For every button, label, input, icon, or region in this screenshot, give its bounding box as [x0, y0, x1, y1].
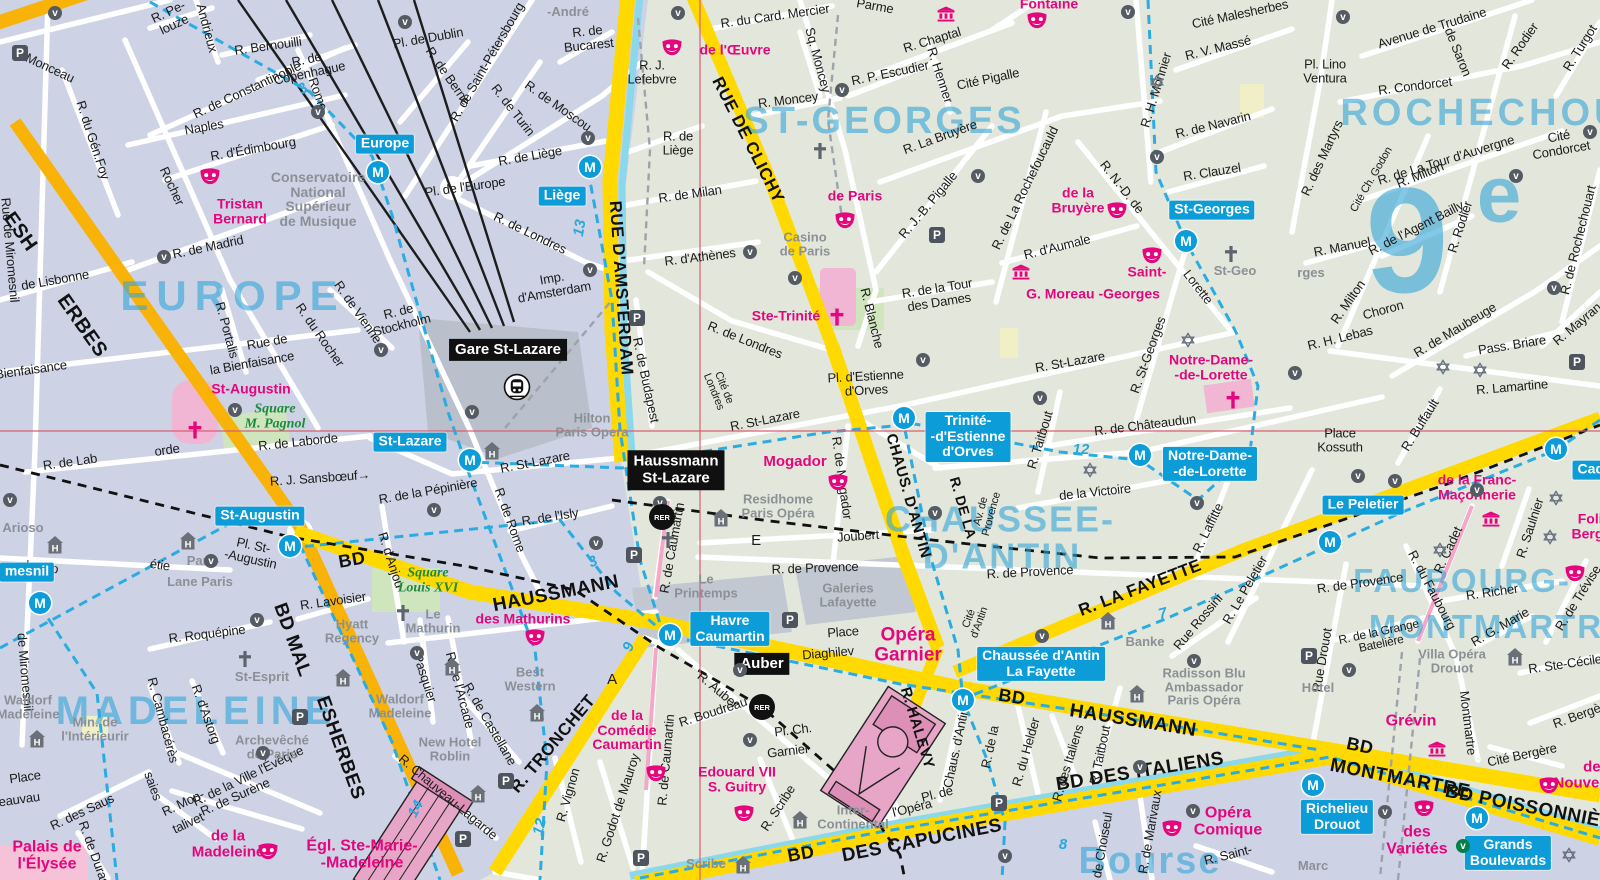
v-marker-icon[interactable]: v — [311, 105, 325, 119]
theater-icon — [662, 39, 683, 57]
v-marker-icon[interactable]: v — [398, 15, 412, 29]
v-marker-icon[interactable]: v — [1288, 366, 1302, 380]
museum-icon — [937, 7, 956, 22]
theater-icon — [1414, 800, 1435, 818]
museum-icon — [1428, 742, 1447, 757]
v-marker-icon[interactable]: v — [204, 554, 218, 568]
parking-icon[interactable]: P — [629, 310, 645, 326]
synagogue-icon — [1150, 75, 1165, 90]
metro-m-icon[interactable]: M — [459, 449, 481, 471]
svg-text:H: H — [34, 738, 41, 749]
v-marker-icon[interactable]: v — [228, 403, 242, 417]
church-cross-icon — [830, 309, 845, 326]
metro-m-icon[interactable]: M — [367, 161, 389, 183]
hotel-icon[interactable]: H — [29, 730, 46, 748]
church-cross-icon — [238, 651, 252, 667]
synagogue-icon — [1181, 333, 1196, 348]
v-marker-icon[interactable]: v — [48, 6, 62, 20]
v-marker-icon[interactable]: v — [1378, 805, 1392, 819]
parking-icon[interactable]: P — [991, 795, 1007, 811]
paris-street-map[interactable]: EUROPEMADELEINEST-GEORGESCHAUSSEE-D'ANTI… — [0, 0, 1600, 880]
synagogue-icon — [1549, 491, 1564, 506]
svg-text:H: H — [1512, 656, 1519, 667]
parking-icon[interactable]: P — [929, 227, 945, 243]
synagogue-icon — [1433, 543, 1448, 558]
v-marker-icon[interactable]: v — [256, 746, 270, 760]
train-station-icon[interactable] — [504, 374, 531, 401]
parking-icon[interactable]: P — [292, 709, 308, 725]
v-marker-icon[interactable]: v — [1033, 391, 1047, 405]
hotel-icon[interactable]: H — [1507, 648, 1524, 666]
v-marker-icon[interactable]: v — [998, 849, 1012, 863]
theater-icon — [734, 805, 755, 823]
parking-icon[interactable]: P — [626, 547, 642, 563]
metro-m-icon[interactable]: M — [279, 535, 301, 557]
svg-text:H: H — [797, 819, 804, 830]
synagogue-icon — [1543, 530, 1558, 545]
church-cross-icon — [396, 605, 410, 621]
synagogue-icon — [1436, 360, 1451, 375]
theater-icon — [258, 843, 279, 861]
theater-icon — [525, 629, 546, 647]
parking-icon[interactable]: P — [633, 850, 649, 866]
hotel-icon[interactable]: H — [47, 536, 64, 554]
hotel-icon[interactable]: H — [792, 811, 809, 829]
theater-icon — [1539, 777, 1560, 795]
metro-m-icon[interactable]: M — [1466, 807, 1488, 829]
hotel-icon[interactable]: H — [335, 669, 352, 687]
v-marker-icon[interactable]: v — [916, 353, 930, 367]
v-marker-icon[interactable]: v — [1336, 10, 1350, 24]
hotel-icon[interactable]: H — [735, 856, 752, 874]
v-marker-icon[interactable]: v — [3, 493, 17, 507]
v-marker-icon[interactable]: v — [427, 503, 441, 517]
v-marker-icon[interactable]: v — [733, 663, 747, 677]
v-marker-icon[interactable]: v — [1190, 496, 1204, 510]
v-marker-icon[interactable]: v — [743, 733, 757, 747]
v-marker-icon[interactable]: v — [743, 245, 757, 259]
hotel-icon[interactable]: H — [180, 532, 197, 550]
v-marker-icon[interactable]: v — [1547, 281, 1561, 295]
metro-m-icon[interactable]: M — [1545, 438, 1567, 460]
church-cross-icon — [813, 143, 827, 159]
v-marker-icon[interactable]: v — [1121, 5, 1135, 19]
map-icons-layer: MMMMMMMMMMMMMMvvvvvvvvvvvvvvvvvvvvvvvvvv… — [0, 0, 1600, 880]
hotel-icon[interactable]: H — [470, 785, 487, 803]
museum-icon — [1482, 512, 1501, 527]
parking-icon[interactable]: P — [455, 831, 471, 847]
parking-icon[interactable]: P — [782, 612, 798, 628]
svg-text:H: H — [740, 864, 747, 875]
theater-icon — [828, 474, 849, 492]
hotel-icon[interactable]: H — [1129, 685, 1146, 703]
v-marker-icon[interactable]: v — [589, 536, 603, 550]
metro-m-icon[interactable]: M — [659, 624, 681, 646]
synagogue-icon — [1562, 848, 1577, 863]
hotel-icon[interactable]: H — [444, 658, 461, 676]
svg-text:H: H — [475, 793, 482, 804]
rer-icon[interactable]: RER — [749, 694, 775, 720]
v-marker-icon[interactable]: v — [928, 506, 942, 520]
v-marker-icon[interactable]: v — [1150, 150, 1164, 164]
v-marker-icon[interactable]: v — [410, 646, 424, 660]
theater-icon — [1027, 12, 1048, 30]
parking-icon[interactable]: P — [1301, 648, 1317, 664]
museum-icon — [1012, 265, 1031, 280]
svg-text:H: H — [340, 677, 347, 688]
hotel-icon[interactable]: H — [713, 509, 730, 527]
v-marker-icon[interactable]: v — [1035, 629, 1049, 643]
metro-m-icon[interactable]: M — [952, 689, 974, 711]
svg-text:H: H — [718, 517, 725, 528]
v-marker-icon[interactable]: v — [157, 250, 171, 264]
v-marker-green-icon[interactable]: v — [1456, 839, 1470, 853]
church-cross-icon — [188, 422, 203, 439]
v-marker-icon[interactable]: v — [465, 405, 479, 419]
svg-text:H: H — [1105, 620, 1112, 631]
metro-m-icon[interactable]: M — [1319, 531, 1341, 553]
parking-icon[interactable]: P — [498, 773, 514, 789]
metro-m-icon[interactable]: M — [29, 592, 51, 614]
metro-m-icon[interactable]: M — [1175, 230, 1197, 252]
theater-icon — [1162, 820, 1183, 838]
v-marker-icon[interactable]: v — [788, 271, 802, 285]
v-marker-icon[interactable]: v — [250, 613, 264, 627]
church-cross-icon — [1224, 246, 1238, 262]
svg-text:H: H — [449, 666, 456, 677]
v-marker-icon[interactable]: v — [1583, 125, 1597, 139]
theater-icon — [200, 168, 221, 186]
metro-m-icon[interactable]: M — [1129, 444, 1151, 466]
metro-m-icon[interactable]: M — [893, 407, 915, 429]
v-marker-icon[interactable]: v — [1388, 474, 1402, 488]
theater-icon — [1142, 247, 1163, 265]
theater-icon — [835, 212, 856, 230]
v-marker-icon[interactable]: v — [581, 131, 595, 145]
v-marker-icon[interactable]: v — [1342, 663, 1356, 677]
theater-icon — [1107, 202, 1128, 220]
parking-icon[interactable]: P — [12, 45, 28, 61]
svg-text:H: H — [52, 544, 59, 555]
v-marker-icon[interactable]: v — [1186, 804, 1200, 818]
rer-icon[interactable]: RER — [649, 504, 675, 530]
svg-text:H: H — [534, 712, 541, 723]
v-marker-icon[interactable]: v — [1470, 483, 1484, 497]
svg-text:H: H — [185, 540, 192, 551]
metro-m-icon[interactable]: M — [1302, 774, 1324, 796]
church-cross-icon — [1226, 392, 1241, 409]
church-cross-icon — [661, 532, 675, 548]
v-marker-icon[interactable]: v — [374, 343, 388, 357]
synagogue-icon — [1473, 363, 1488, 378]
hotel-icon[interactable]: H — [1100, 612, 1117, 630]
svg-text:H: H — [489, 450, 496, 461]
svg-text:H: H — [1134, 693, 1141, 704]
parking-icon[interactable]: P — [1569, 354, 1585, 370]
v-marker-icon[interactable]: v — [835, 83, 849, 97]
metro-m-icon[interactable]: M — [579, 156, 601, 178]
v-marker-icon[interactable]: v — [1509, 169, 1523, 183]
v-marker-icon[interactable]: v — [671, 6, 685, 20]
v-marker-icon[interactable]: v — [1187, 654, 1201, 668]
synagogue-icon — [1083, 463, 1098, 478]
hotel-icon[interactable]: H — [484, 442, 501, 460]
v-marker-icon[interactable]: v — [583, 263, 597, 277]
v-marker-icon[interactable]: v — [1133, 760, 1147, 774]
v-marker-icon[interactable]: v — [1351, 469, 1365, 483]
v-marker-icon[interactable]: v — [971, 169, 985, 183]
theater-icon — [646, 765, 667, 783]
theater-icon — [1565, 565, 1586, 583]
hotel-icon[interactable]: H — [529, 704, 546, 722]
